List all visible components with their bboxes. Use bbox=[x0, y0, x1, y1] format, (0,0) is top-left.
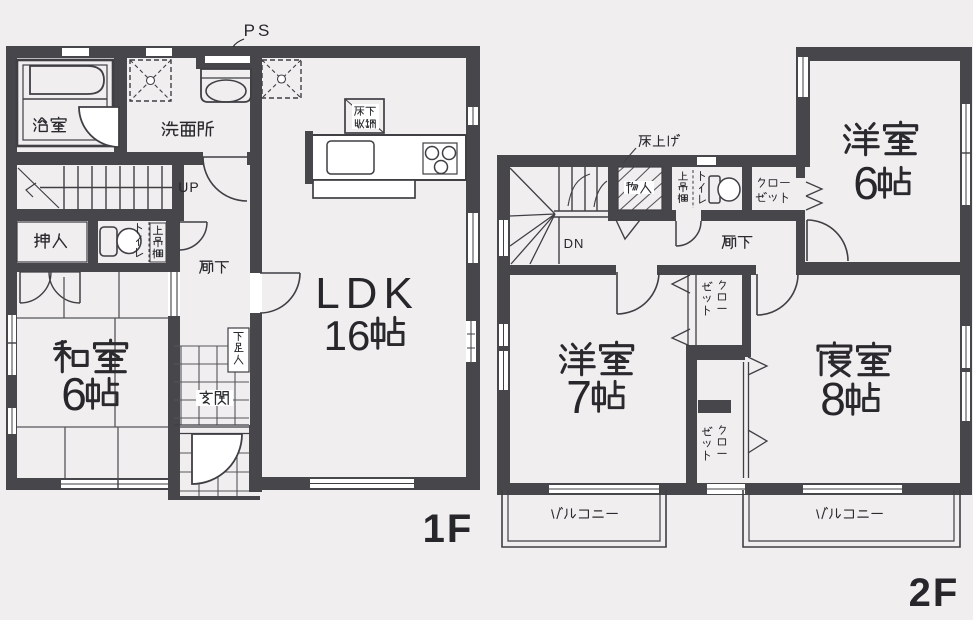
svg-text:DN: DN bbox=[564, 236, 585, 251]
svg-text:16: 16 bbox=[324, 312, 371, 359]
svg-text:8: 8 bbox=[820, 373, 846, 425]
svg-text:UP: UP bbox=[178, 179, 199, 195]
svg-text:6: 6 bbox=[853, 157, 879, 209]
svg-text:2F: 2F bbox=[909, 571, 960, 615]
svg-text:1F: 1F bbox=[423, 507, 474, 551]
svg-text:7: 7 bbox=[566, 371, 592, 423]
svg-text:PS: PS bbox=[244, 21, 273, 40]
svg-text:6: 6 bbox=[61, 368, 87, 420]
svg-text:LDK: LDK bbox=[315, 269, 419, 318]
